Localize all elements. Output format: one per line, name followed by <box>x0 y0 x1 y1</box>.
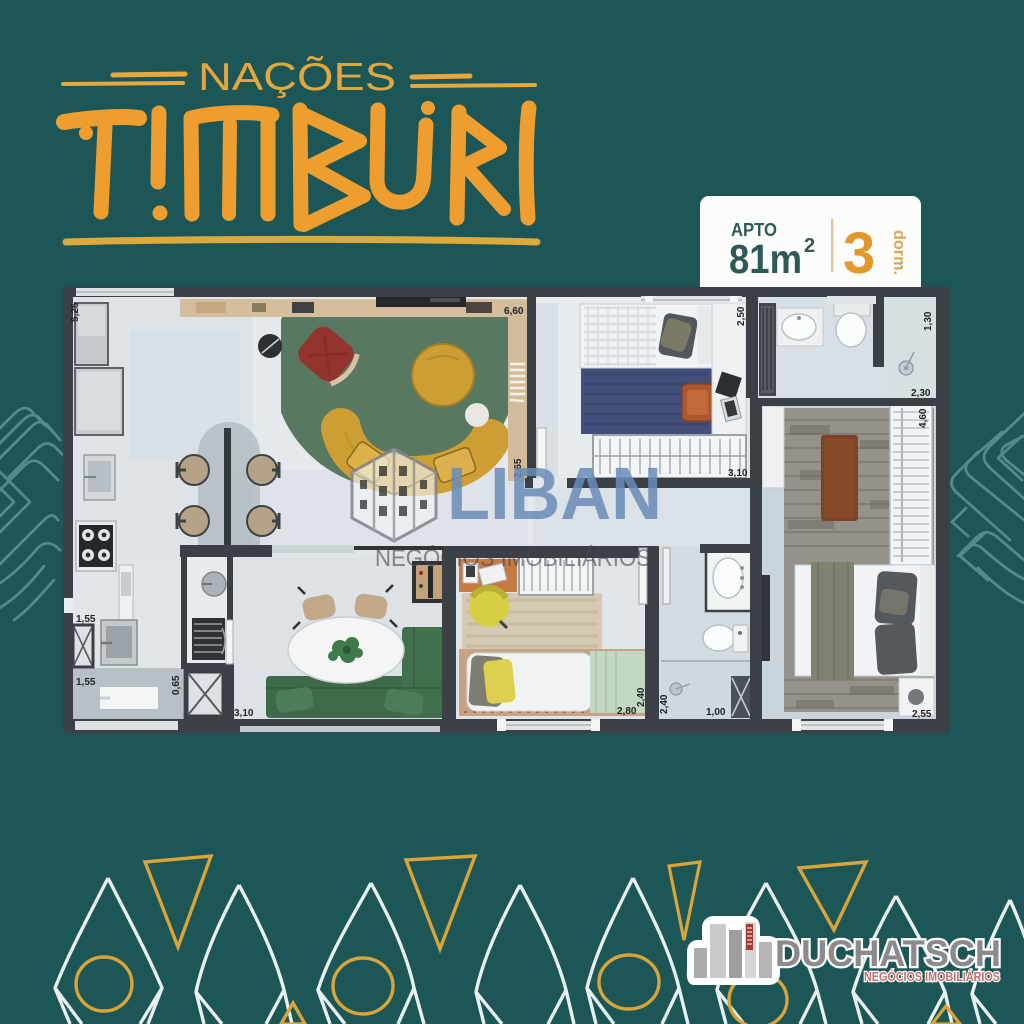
svg-text:4,60: 4,60 <box>918 408 929 428</box>
svg-text:3,10: 3,10 <box>234 708 254 719</box>
svg-text:dorm.: dorm. <box>890 230 909 275</box>
svg-text:NAÇÕES: NAÇÕES <box>198 55 396 99</box>
svg-text:5,25: 5,25 <box>70 302 81 322</box>
svg-text:1,30: 1,30 <box>923 311 934 331</box>
svg-text:2,55: 2,55 <box>912 709 932 720</box>
svg-text:2,50: 2,50 <box>736 306 747 326</box>
svg-text:0,65: 0,65 <box>171 675 182 695</box>
svg-text:NEGÓCIOS IMOBILIÁRIOS: NEGÓCIOS IMOBILIÁRIOS <box>375 545 651 572</box>
svg-text:2: 2 <box>804 235 815 257</box>
svg-text:1,55: 1,55 <box>76 677 96 688</box>
svg-text:NEGÓCIOS IMOBILIÁRIOS: NEGÓCIOS IMOBILIÁRIOS <box>864 969 1000 984</box>
svg-text:6,60: 6,60 <box>504 306 524 317</box>
svg-text:3,10: 3,10 <box>728 468 748 479</box>
svg-text:2,40: 2,40 <box>636 687 647 707</box>
svg-text:1,55: 1,55 <box>76 614 96 625</box>
svg-text:2,30: 2,30 <box>911 388 931 399</box>
svg-text:81m: 81m <box>729 236 802 282</box>
svg-text:2,80: 2,80 <box>617 706 637 717</box>
svg-text:1,00: 1,00 <box>706 707 726 718</box>
svg-text:DUCHATSCH: DUCHATSCH <box>775 933 1001 974</box>
svg-text:2,40: 2,40 <box>659 694 670 714</box>
svg-text:LIBAN: LIBAN <box>447 452 662 535</box>
svg-text:3: 3 <box>843 221 875 286</box>
